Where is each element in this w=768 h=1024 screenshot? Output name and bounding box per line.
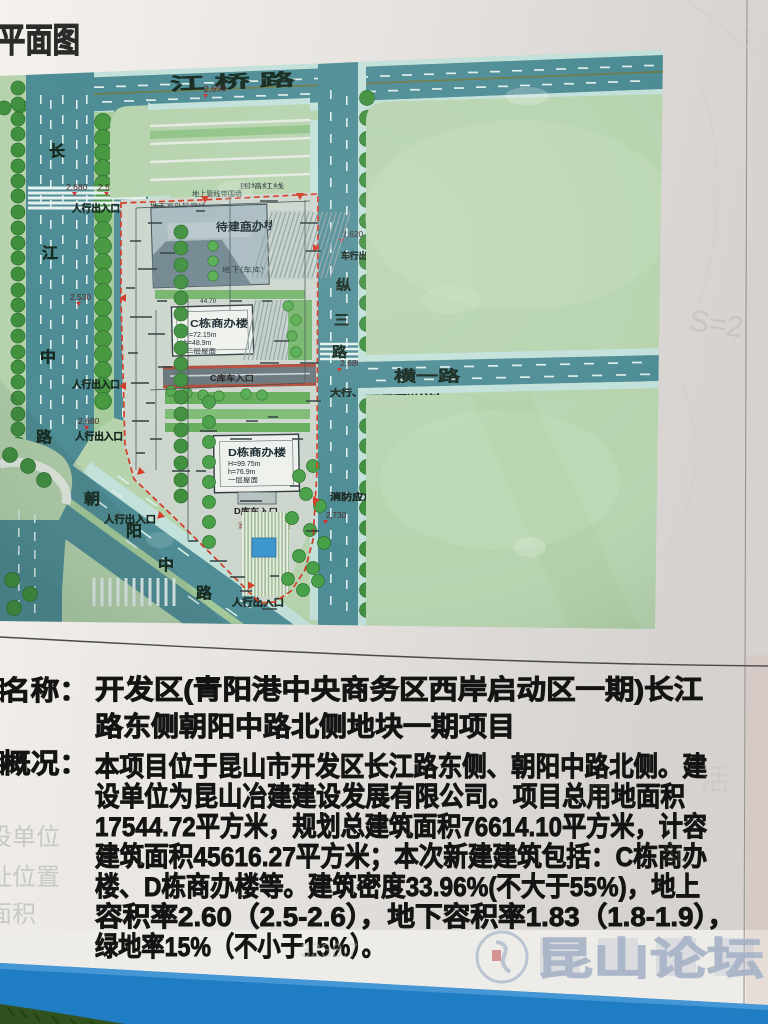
svg-text:3238.7: 3238.7 — [300, 941, 358, 962]
svg-text:昆山论坛: 昆山论坛 — [536, 935, 764, 984]
svg-text:行: 行 — [585, 774, 615, 807]
svg-text:本项目位于昆山市开发区长江路东侧、朝阳中路北侧。建: 本项目位于昆山市开发区长江路东侧、朝阳中路北侧。建 — [95, 751, 707, 782]
svg-text:容积率2.60（2.5-2.6），地下容积率1.83（1.8: 容积率2.60（2.5-2.6），地下容积率1.83（1.8-1.9）， — [95, 901, 735, 932]
svg-text:面积: 面积 — [0, 901, 36, 928]
svg-text:名称：: 名称： — [2, 675, 88, 706]
svg-text:概况：: 概况： — [2, 749, 88, 779]
svg-text:17544.72平方米，规划总建筑面积76614.10平方米: 17544.72平方米，规划总建筑面积76614.10平方米，计容 — [95, 811, 707, 842]
svg-text:址位置: 址位置 — [0, 864, 60, 891]
svg-text:楼、D栋商办楼等。建筑密度33.96%(不大于55%)，地上: 楼、D栋商办楼等。建筑密度33.96%(不大于55%)，地上 — [95, 871, 700, 902]
svg-text:业: 业 — [660, 834, 690, 867]
svg-text:活: 活 — [700, 764, 730, 797]
svg-text:路东侧朝阳中路北侧地块一期项目: 路东侧朝阳中路北侧地块一期项目 — [95, 711, 515, 742]
svg-text:开发区(青阳港中央商务区西岸启动区一期)长江: 开发区(青阳港中央商务区西岸启动区一期)长江 — [95, 674, 703, 705]
svg-text:设单位: 设单位 — [0, 824, 60, 851]
svg-text:建筑面积45616.27平方米；本次新建建筑包括：C栋商办: 建筑面积45616.27平方米；本次新建建筑包括：C栋商办 — [95, 841, 707, 872]
svg-text:平面图: 平面图 — [0, 22, 80, 60]
